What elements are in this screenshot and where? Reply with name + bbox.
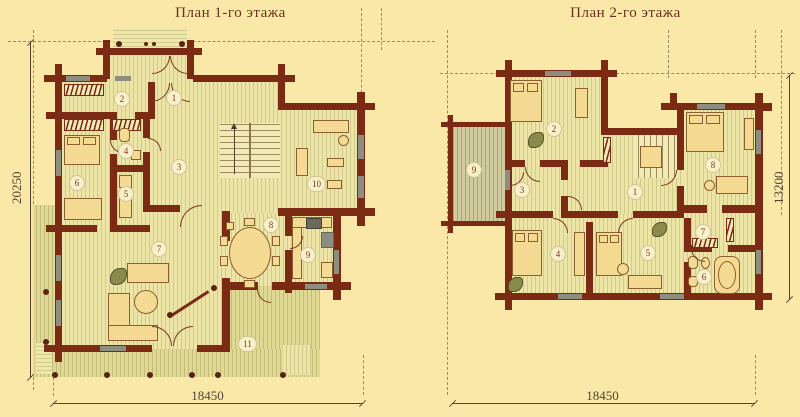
window	[545, 71, 571, 76]
wardrobe-hatch	[726, 218, 734, 242]
wall	[505, 211, 553, 218]
wall	[677, 110, 684, 170]
log-end	[763, 293, 772, 300]
room-badge-3: 3	[514, 182, 530, 198]
window	[756, 130, 761, 154]
plan2-title: План 2-го этажа	[553, 5, 698, 22]
dim-line-bottom	[452, 403, 755, 404]
stairs-landing	[640, 146, 662, 168]
axis-dash	[755, 355, 756, 395]
log-end	[448, 226, 453, 233]
bed-pillow	[706, 115, 720, 124]
door-threshold	[558, 294, 582, 299]
log-end	[496, 70, 506, 77]
bed-pillow	[513, 83, 524, 92]
desk	[628, 275, 662, 289]
wall	[505, 160, 525, 167]
dim-tick	[751, 400, 758, 407]
room-badge-2: 2	[546, 121, 562, 137]
axis-dash	[755, 30, 756, 78]
blueprint-canvas: План 1-го этажа	[0, 0, 800, 417]
bathtub-basin	[718, 261, 736, 289]
desk	[716, 176, 748, 194]
wall	[722, 205, 757, 213]
dim-label-right: 13200	[771, 156, 787, 220]
balcony-wall	[448, 221, 508, 226]
window	[697, 104, 725, 109]
room-badge-8: 8	[705, 157, 721, 173]
wall	[601, 70, 608, 135]
log-end	[441, 122, 448, 127]
room-badge-5: 5	[640, 245, 656, 261]
cabinet	[574, 232, 585, 276]
bed-pillow	[689, 115, 703, 124]
dim-line-right	[789, 75, 790, 300]
wall	[505, 293, 757, 300]
room-badge-7: 7	[695, 224, 711, 240]
wall	[684, 218, 691, 248]
window	[756, 250, 761, 274]
wall	[540, 160, 565, 167]
floor2-plan: План 2-го этажа	[0, 0, 800, 417]
axis-dash	[440, 73, 795, 74]
dim-tick	[786, 296, 793, 303]
room-badge-1: 1	[627, 184, 643, 200]
room-badge-9: 9	[466, 162, 482, 178]
log-end	[505, 300, 512, 310]
wall	[561, 196, 568, 218]
bed-pillow	[515, 233, 525, 242]
chaise	[744, 118, 754, 150]
log-end	[661, 103, 671, 110]
chair	[617, 263, 629, 275]
log-end	[755, 300, 763, 310]
axis-dash	[668, 30, 669, 78]
wall	[601, 128, 684, 135]
log-end	[441, 221, 448, 226]
log-end	[763, 103, 772, 111]
bed-pillow	[610, 235, 619, 243]
log-end	[495, 293, 505, 300]
wall	[728, 245, 757, 252]
door-threshold	[660, 294, 684, 299]
log-end	[608, 70, 617, 77]
log-end	[670, 93, 677, 104]
balcony-wall	[448, 122, 508, 127]
wall	[586, 222, 593, 300]
wall	[568, 211, 618, 218]
dim-label-bottom: 18450	[545, 388, 660, 402]
log-end	[601, 60, 608, 71]
log-end	[505, 60, 512, 71]
log-end	[448, 115, 453, 122]
log-end	[496, 211, 505, 218]
bed-pillow	[527, 83, 538, 92]
room-badge-4: 4	[550, 246, 566, 262]
log-end	[755, 93, 763, 104]
bed-pillow	[528, 233, 538, 242]
wall	[633, 211, 684, 218]
chair	[704, 180, 715, 191]
room-badge-6: 6	[696, 269, 712, 285]
bed-pillow	[599, 235, 608, 243]
balcony-wall	[448, 122, 453, 226]
wardrobe-hatch	[603, 137, 611, 163]
wardrobe	[575, 88, 588, 118]
